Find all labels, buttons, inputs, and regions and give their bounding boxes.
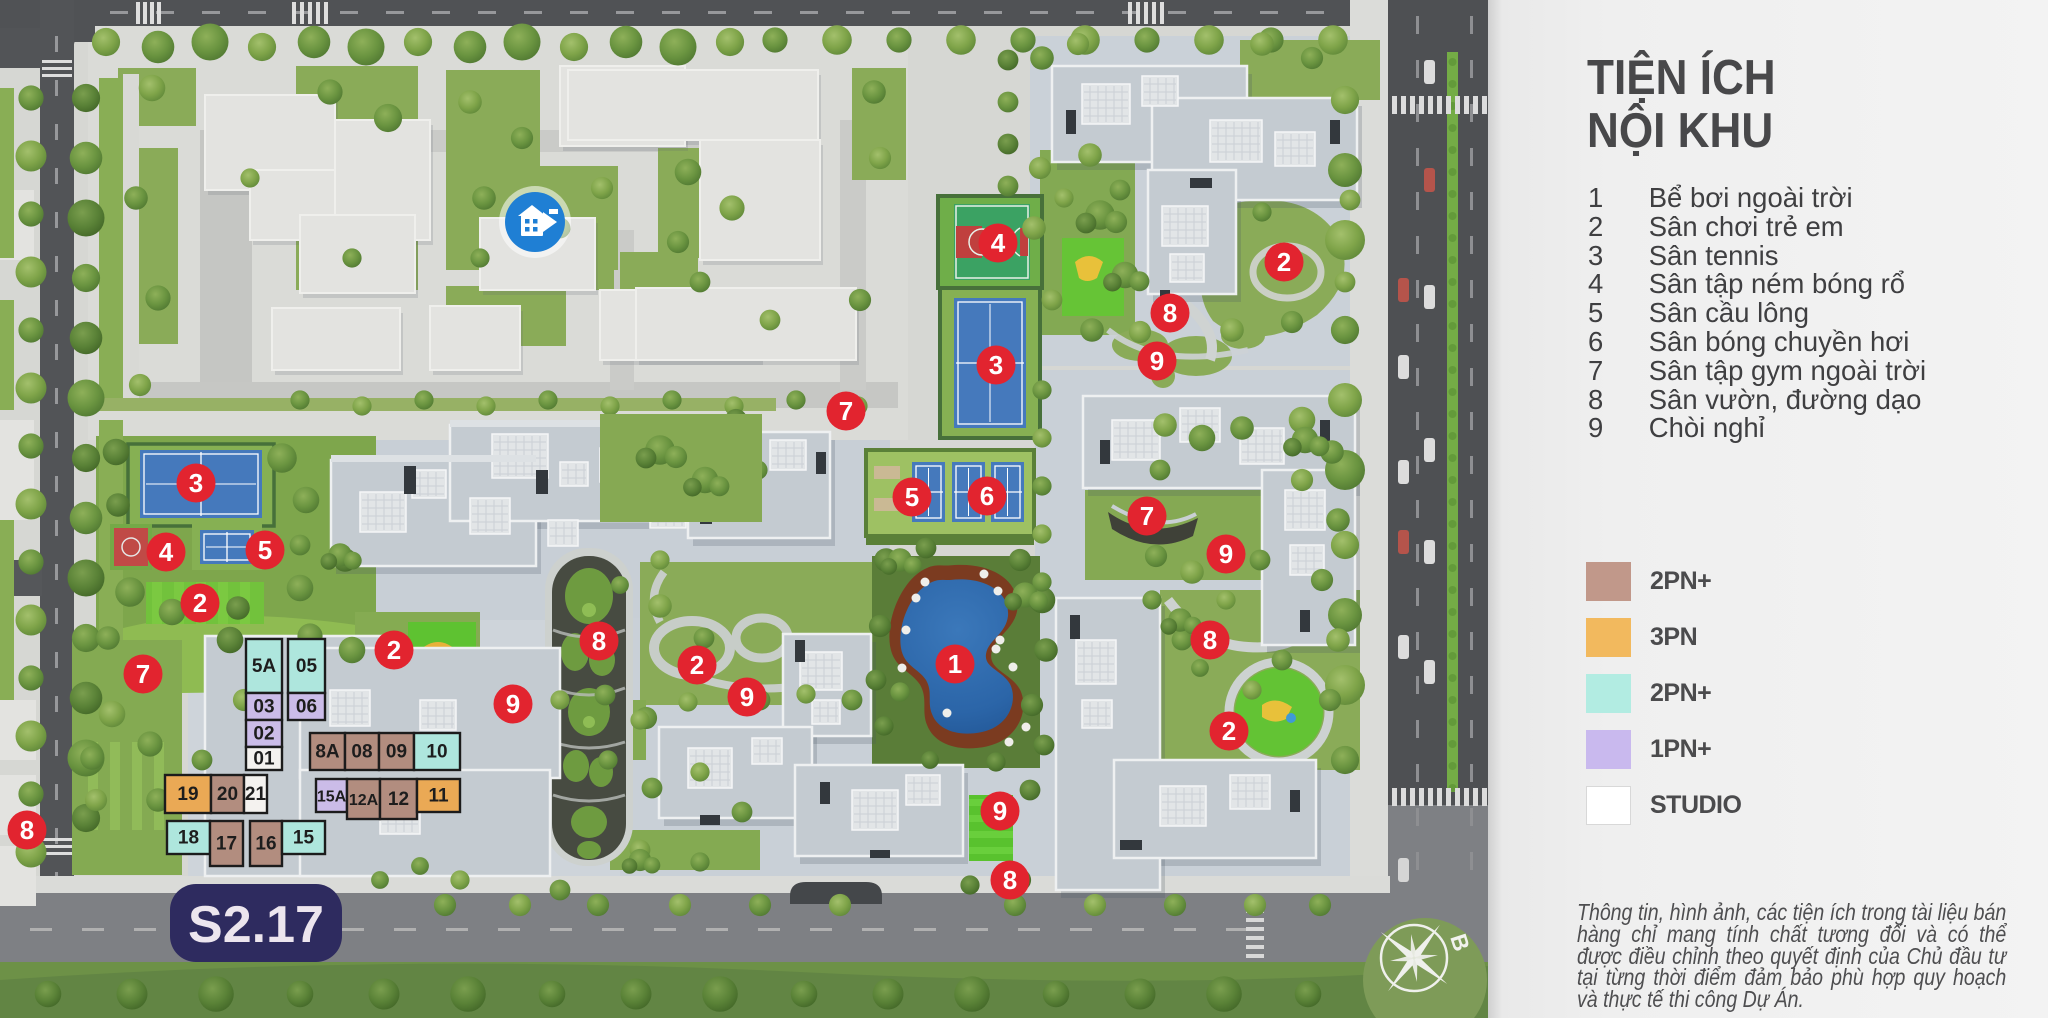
svg-text:09: 09: [386, 742, 407, 763]
svg-text:4: 4: [159, 537, 174, 567]
svg-text:12A: 12A: [349, 792, 379, 809]
svg-text:6: 6: [980, 481, 994, 511]
svg-text:08: 08: [351, 742, 372, 763]
svg-text:02: 02: [253, 724, 274, 745]
svg-text:8: 8: [1003, 865, 1017, 895]
svg-text:7: 7: [136, 659, 150, 689]
svg-text:7: 7: [1140, 501, 1154, 531]
svg-text:20: 20: [217, 784, 238, 805]
svg-text:18: 18: [178, 828, 199, 849]
svg-text:9: 9: [1219, 539, 1233, 569]
svg-text:9: 9: [993, 796, 1007, 826]
svg-text:5A: 5A: [252, 656, 277, 677]
svg-text:9: 9: [740, 682, 754, 712]
svg-text:7: 7: [839, 396, 853, 426]
svg-text:3: 3: [189, 468, 203, 498]
svg-text:3: 3: [989, 350, 1003, 380]
svg-text:1: 1: [948, 649, 962, 679]
svg-text:19: 19: [177, 784, 198, 805]
svg-text:17: 17: [216, 834, 237, 855]
svg-text:06: 06: [296, 697, 317, 718]
svg-text:2: 2: [1277, 247, 1291, 277]
svg-text:10: 10: [426, 742, 447, 763]
svg-text:8: 8: [20, 815, 34, 845]
svg-text:9: 9: [506, 689, 520, 719]
svg-text:15: 15: [293, 828, 315, 849]
svg-text:2: 2: [387, 635, 401, 665]
svg-text:8: 8: [1203, 625, 1217, 655]
svg-text:8: 8: [1163, 298, 1177, 328]
svg-text:S2.17: S2.17: [188, 896, 324, 954]
svg-text:21: 21: [245, 784, 267, 805]
svg-text:15A: 15A: [317, 789, 347, 806]
svg-text:9: 9: [1150, 346, 1164, 376]
svg-text:05: 05: [296, 656, 318, 677]
svg-text:2: 2: [1222, 716, 1236, 746]
svg-text:8A: 8A: [315, 742, 340, 763]
svg-text:11: 11: [428, 786, 449, 807]
svg-text:4: 4: [991, 228, 1006, 258]
svg-text:01: 01: [253, 749, 275, 770]
svg-text:5: 5: [258, 535, 272, 565]
svg-text:8: 8: [592, 626, 606, 656]
svg-text:2: 2: [193, 588, 207, 618]
svg-text:16: 16: [255, 834, 276, 855]
svg-text:03: 03: [253, 697, 274, 718]
svg-text:12: 12: [388, 789, 409, 810]
svg-text:5: 5: [905, 482, 919, 512]
svg-text:2: 2: [690, 650, 704, 680]
